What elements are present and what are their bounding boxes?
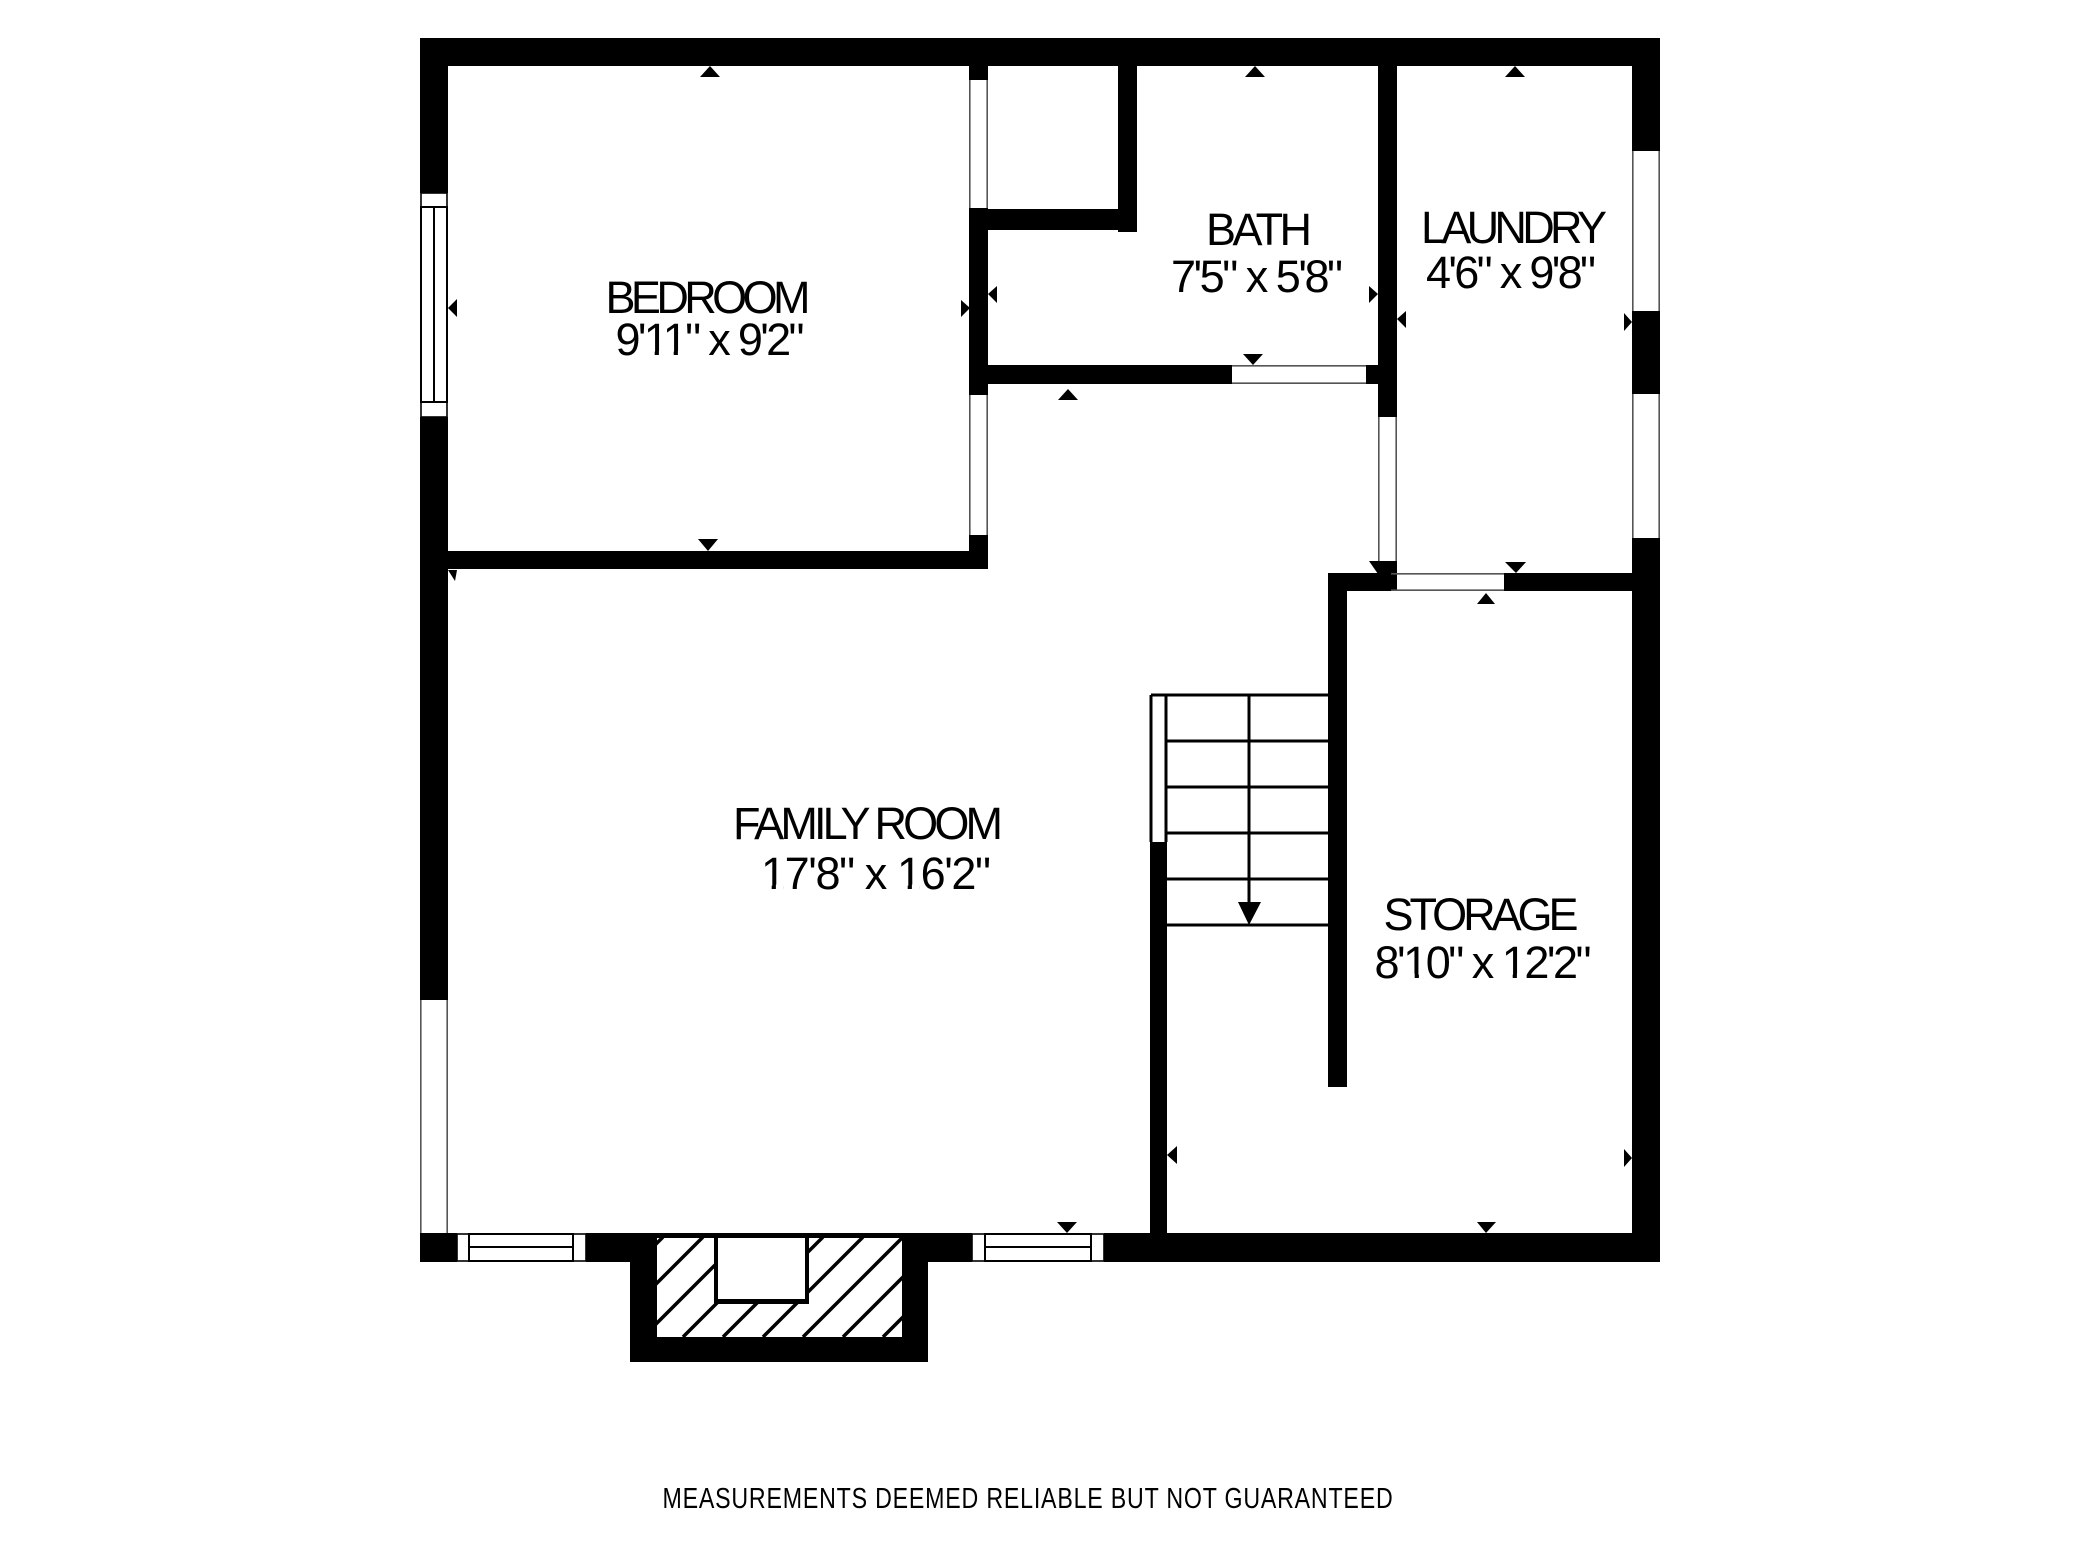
svg-text:LAUNDRY: LAUNDRY xyxy=(1421,202,1607,253)
svg-text:7'5" x 5'8": 7'5" x 5'8" xyxy=(1171,251,1343,302)
svg-text:FAMILY ROOM: FAMILY ROOM xyxy=(733,798,1003,849)
svg-text:BATH: BATH xyxy=(1206,204,1312,255)
svg-text:STORAGE: STORAGE xyxy=(1384,889,1579,940)
svg-text:17'8" x 16'2": 17'8" x 16'2" xyxy=(761,848,991,899)
svg-text:MEASUREMENTS DEEMED RELIABLE B: MEASUREMENTS DEEMED RELIABLE BUT NOT GUA… xyxy=(663,1483,1394,1515)
svg-text:9'11" x 9'2": 9'11" x 9'2" xyxy=(616,314,805,365)
svg-text:4'6" x 9'8": 4'6" x 9'8" xyxy=(1426,247,1596,298)
svg-text:8'10" x 12'2": 8'10" x 12'2" xyxy=(1375,937,1592,988)
